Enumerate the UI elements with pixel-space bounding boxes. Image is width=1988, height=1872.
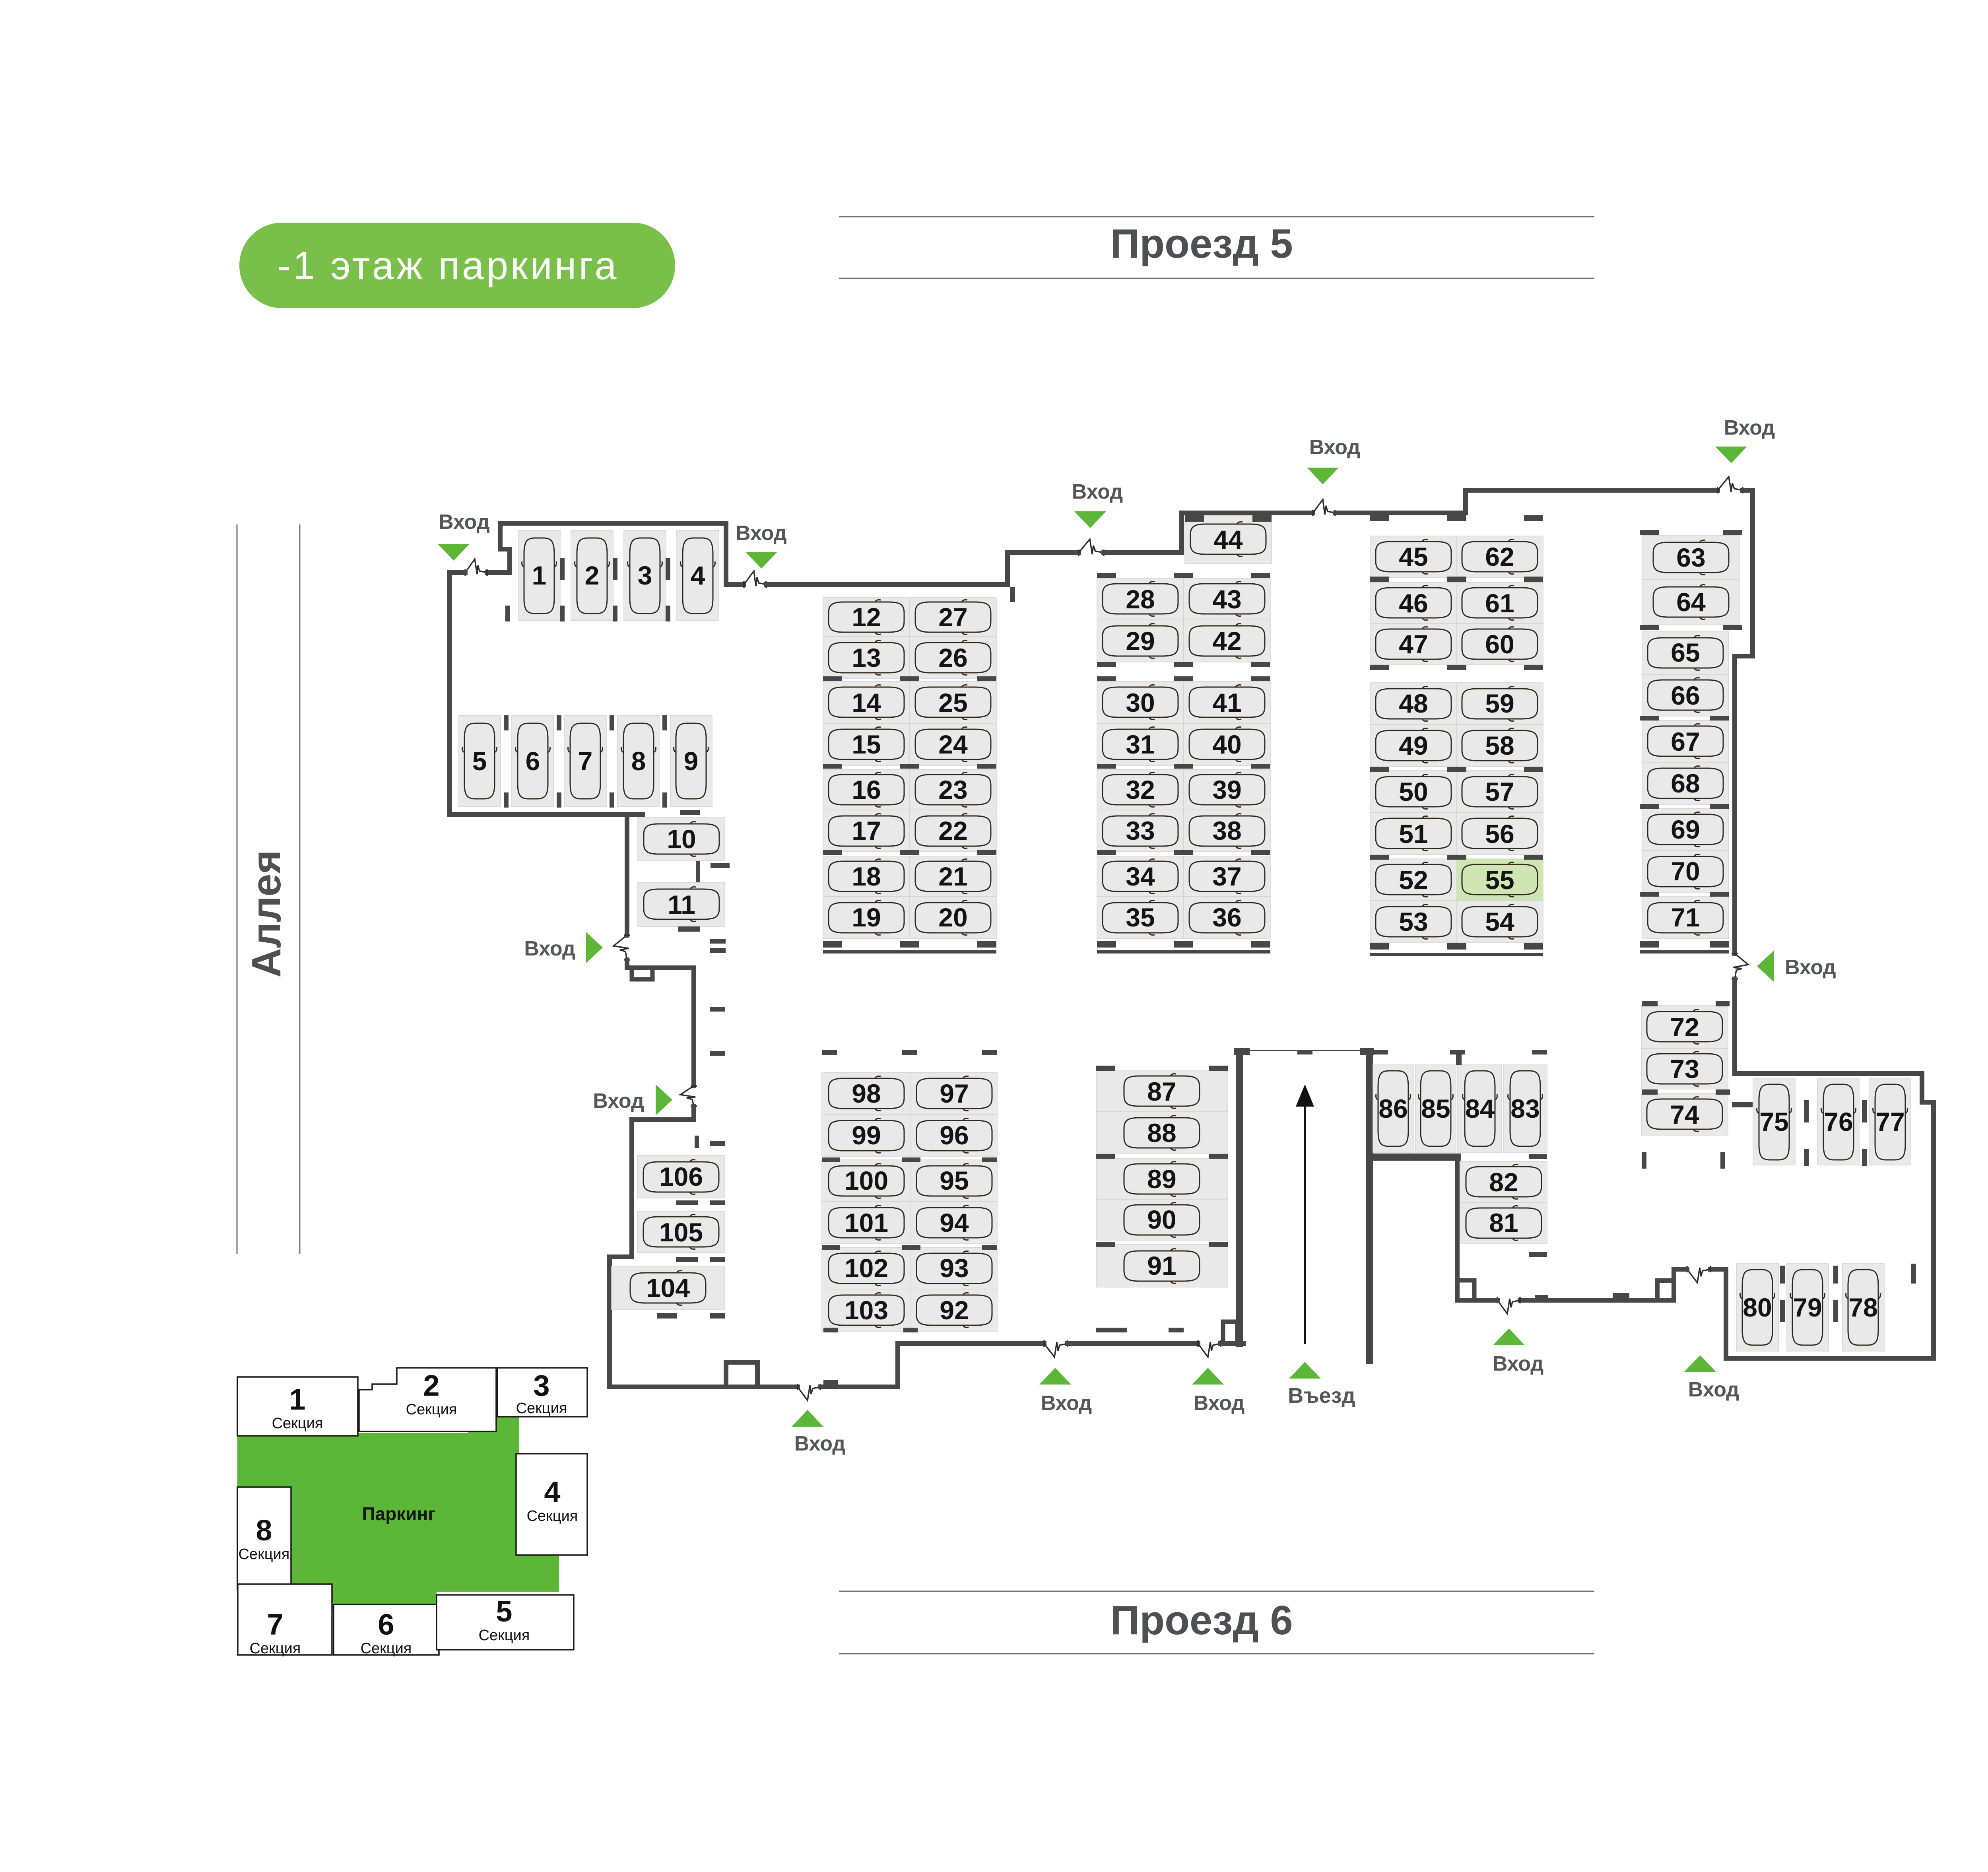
svg-text:73: 73 <box>1670 1054 1699 1084</box>
svg-text:33: 33 <box>1126 816 1155 845</box>
svg-text:3: 3 <box>638 561 652 590</box>
svg-text:43: 43 <box>1212 585 1241 614</box>
svg-text:5: 5 <box>496 1595 512 1628</box>
svg-text:26: 26 <box>938 643 967 672</box>
svg-text:72: 72 <box>1670 1012 1699 1042</box>
svg-text:35: 35 <box>1126 903 1155 932</box>
svg-text:58: 58 <box>1485 731 1514 760</box>
svg-text:44: 44 <box>1213 525 1243 554</box>
svg-text:105: 105 <box>659 1218 703 1247</box>
svg-text:30: 30 <box>1126 688 1155 717</box>
svg-text:78: 78 <box>1848 1293 1877 1322</box>
svg-text:11: 11 <box>668 890 695 919</box>
svg-text:66: 66 <box>1671 681 1700 710</box>
svg-text:80: 80 <box>1743 1293 1772 1322</box>
svg-text:19: 19 <box>852 903 881 932</box>
svg-text:60: 60 <box>1485 629 1514 659</box>
svg-text:94: 94 <box>940 1208 969 1237</box>
svg-text:50: 50 <box>1399 777 1428 806</box>
svg-text:54: 54 <box>1485 907 1514 936</box>
svg-text:7: 7 <box>578 746 593 776</box>
svg-text:61: 61 <box>1485 588 1514 618</box>
svg-text:74: 74 <box>1670 1100 1699 1129</box>
svg-text:4: 4 <box>691 561 705 590</box>
svg-text:79: 79 <box>1793 1293 1822 1322</box>
svg-text:106: 106 <box>659 1162 703 1191</box>
svg-text:6: 6 <box>378 1608 394 1641</box>
svg-text:1: 1 <box>532 561 547 590</box>
svg-text:25: 25 <box>938 688 967 717</box>
svg-text:Секция: Секция <box>527 1508 578 1524</box>
svg-text:6: 6 <box>526 746 540 776</box>
svg-text:53: 53 <box>1399 907 1428 936</box>
svg-text:69: 69 <box>1671 815 1700 844</box>
svg-text:Вход: Вход <box>794 1432 846 1455</box>
svg-text:12: 12 <box>852 602 881 632</box>
svg-text:21: 21 <box>938 862 967 891</box>
svg-text:41: 41 <box>1212 688 1241 717</box>
svg-text:93: 93 <box>940 1253 969 1283</box>
svg-text:29: 29 <box>1126 626 1155 656</box>
svg-text:Вход: Вход <box>1724 416 1775 439</box>
svg-text:71: 71 <box>1671 903 1700 932</box>
svg-text:101: 101 <box>845 1208 888 1237</box>
svg-text:47: 47 <box>1399 629 1428 659</box>
svg-text:84: 84 <box>1465 1094 1495 1123</box>
svg-text:57: 57 <box>1485 777 1514 806</box>
svg-text:-1 этаж паркинга: -1 этаж паркинга <box>278 243 619 287</box>
svg-text:1: 1 <box>289 1383 305 1416</box>
svg-text:8: 8 <box>256 1514 272 1547</box>
svg-text:38: 38 <box>1212 816 1241 845</box>
svg-text:81: 81 <box>1489 1208 1518 1237</box>
svg-text:Вход: Вход <box>1072 480 1123 503</box>
svg-text:Аллея: Аллея <box>243 850 289 977</box>
svg-text:76: 76 <box>1824 1107 1853 1136</box>
svg-text:10: 10 <box>667 824 696 854</box>
svg-text:92: 92 <box>940 1295 969 1325</box>
svg-text:Вход: Вход <box>1309 436 1361 459</box>
svg-text:59: 59 <box>1485 689 1514 718</box>
svg-text:63: 63 <box>1676 543 1705 572</box>
svg-text:Вход: Вход <box>439 511 490 534</box>
svg-text:83: 83 <box>1510 1094 1540 1123</box>
svg-text:7: 7 <box>267 1608 283 1641</box>
svg-text:102: 102 <box>845 1253 888 1283</box>
svg-text:85: 85 <box>1421 1094 1450 1123</box>
svg-text:3: 3 <box>533 1369 549 1402</box>
svg-text:Вход: Вход <box>1194 1392 1245 1415</box>
svg-text:88: 88 <box>1147 1118 1176 1148</box>
svg-text:89: 89 <box>1147 1164 1176 1194</box>
svg-text:39: 39 <box>1212 775 1241 804</box>
svg-text:32: 32 <box>1126 775 1155 804</box>
svg-text:34: 34 <box>1126 862 1155 891</box>
svg-text:4: 4 <box>544 1476 560 1509</box>
svg-text:31: 31 <box>1126 730 1155 759</box>
svg-text:22: 22 <box>938 816 967 845</box>
svg-text:Вход: Вход <box>1688 1378 1739 1401</box>
svg-text:28: 28 <box>1126 585 1155 614</box>
svg-text:55: 55 <box>1485 865 1514 895</box>
svg-text:40: 40 <box>1212 730 1241 759</box>
svg-text:27: 27 <box>938 602 967 632</box>
svg-text:104: 104 <box>646 1273 690 1303</box>
svg-text:Секция: Секция <box>239 1546 290 1563</box>
svg-text:100: 100 <box>845 1166 888 1195</box>
svg-text:17: 17 <box>852 816 881 845</box>
svg-text:23: 23 <box>938 775 967 804</box>
svg-text:86: 86 <box>1378 1094 1408 1123</box>
svg-text:24: 24 <box>938 730 968 759</box>
svg-text:82: 82 <box>1489 1167 1518 1197</box>
svg-text:Секция: Секция <box>272 1415 323 1432</box>
svg-text:14: 14 <box>852 688 881 717</box>
svg-text:75: 75 <box>1759 1107 1788 1136</box>
svg-text:9: 9 <box>684 746 699 776</box>
svg-text:62: 62 <box>1485 542 1514 571</box>
svg-text:64: 64 <box>1676 587 1706 617</box>
svg-text:5: 5 <box>472 746 487 776</box>
svg-text:48: 48 <box>1399 689 1428 718</box>
svg-text:Вход: Вход <box>1493 1352 1544 1375</box>
svg-text:87: 87 <box>1147 1077 1176 1106</box>
svg-text:Вход: Вход <box>1041 1392 1092 1415</box>
svg-text:Секция: Секция <box>479 1627 530 1644</box>
svg-text:2: 2 <box>423 1369 439 1402</box>
svg-text:52: 52 <box>1399 865 1428 895</box>
svg-text:99: 99 <box>852 1120 881 1150</box>
svg-text:Секция: Секция <box>516 1400 567 1417</box>
svg-text:49: 49 <box>1399 731 1428 760</box>
svg-text:Секция: Секция <box>361 1640 412 1657</box>
svg-text:Вход: Вход <box>524 937 575 960</box>
svg-text:70: 70 <box>1671 856 1700 886</box>
svg-text:37: 37 <box>1212 862 1241 891</box>
svg-text:Проезд 5: Проезд 5 <box>1110 221 1293 266</box>
svg-text:65: 65 <box>1671 638 1700 667</box>
svg-text:103: 103 <box>845 1295 888 1325</box>
svg-text:8: 8 <box>631 746 646 776</box>
svg-text:Секция: Секция <box>250 1640 301 1657</box>
svg-text:Вход: Вход <box>736 522 787 545</box>
svg-text:15: 15 <box>852 730 881 759</box>
svg-text:96: 96 <box>940 1120 969 1150</box>
svg-text:Вход: Вход <box>1785 956 1836 979</box>
svg-text:Паркинг: Паркинг <box>362 1503 436 1524</box>
svg-text:42: 42 <box>1212 626 1241 656</box>
svg-text:91: 91 <box>1147 1251 1176 1280</box>
svg-text:51: 51 <box>1399 819 1428 849</box>
svg-text:97: 97 <box>940 1079 969 1108</box>
svg-text:46: 46 <box>1399 588 1428 618</box>
svg-text:36: 36 <box>1212 903 1241 932</box>
svg-text:Секция: Секция <box>406 1401 457 1418</box>
svg-text:67: 67 <box>1671 727 1700 756</box>
svg-text:77: 77 <box>1875 1107 1905 1136</box>
svg-text:45: 45 <box>1399 542 1428 571</box>
svg-text:13: 13 <box>852 643 881 672</box>
svg-text:2: 2 <box>585 561 600 590</box>
svg-text:20: 20 <box>938 903 967 932</box>
svg-text:68: 68 <box>1671 769 1700 798</box>
svg-text:90: 90 <box>1147 1205 1176 1234</box>
svg-text:Въезд: Въезд <box>1288 1384 1355 1408</box>
svg-text:Вход: Вход <box>593 1089 644 1113</box>
svg-text:18: 18 <box>852 862 881 891</box>
svg-text:98: 98 <box>852 1079 881 1108</box>
svg-text:95: 95 <box>940 1166 969 1195</box>
svg-text:16: 16 <box>852 775 881 804</box>
svg-text:56: 56 <box>1485 819 1514 849</box>
svg-text:Проезд 6: Проезд 6 <box>1110 1597 1293 1643</box>
